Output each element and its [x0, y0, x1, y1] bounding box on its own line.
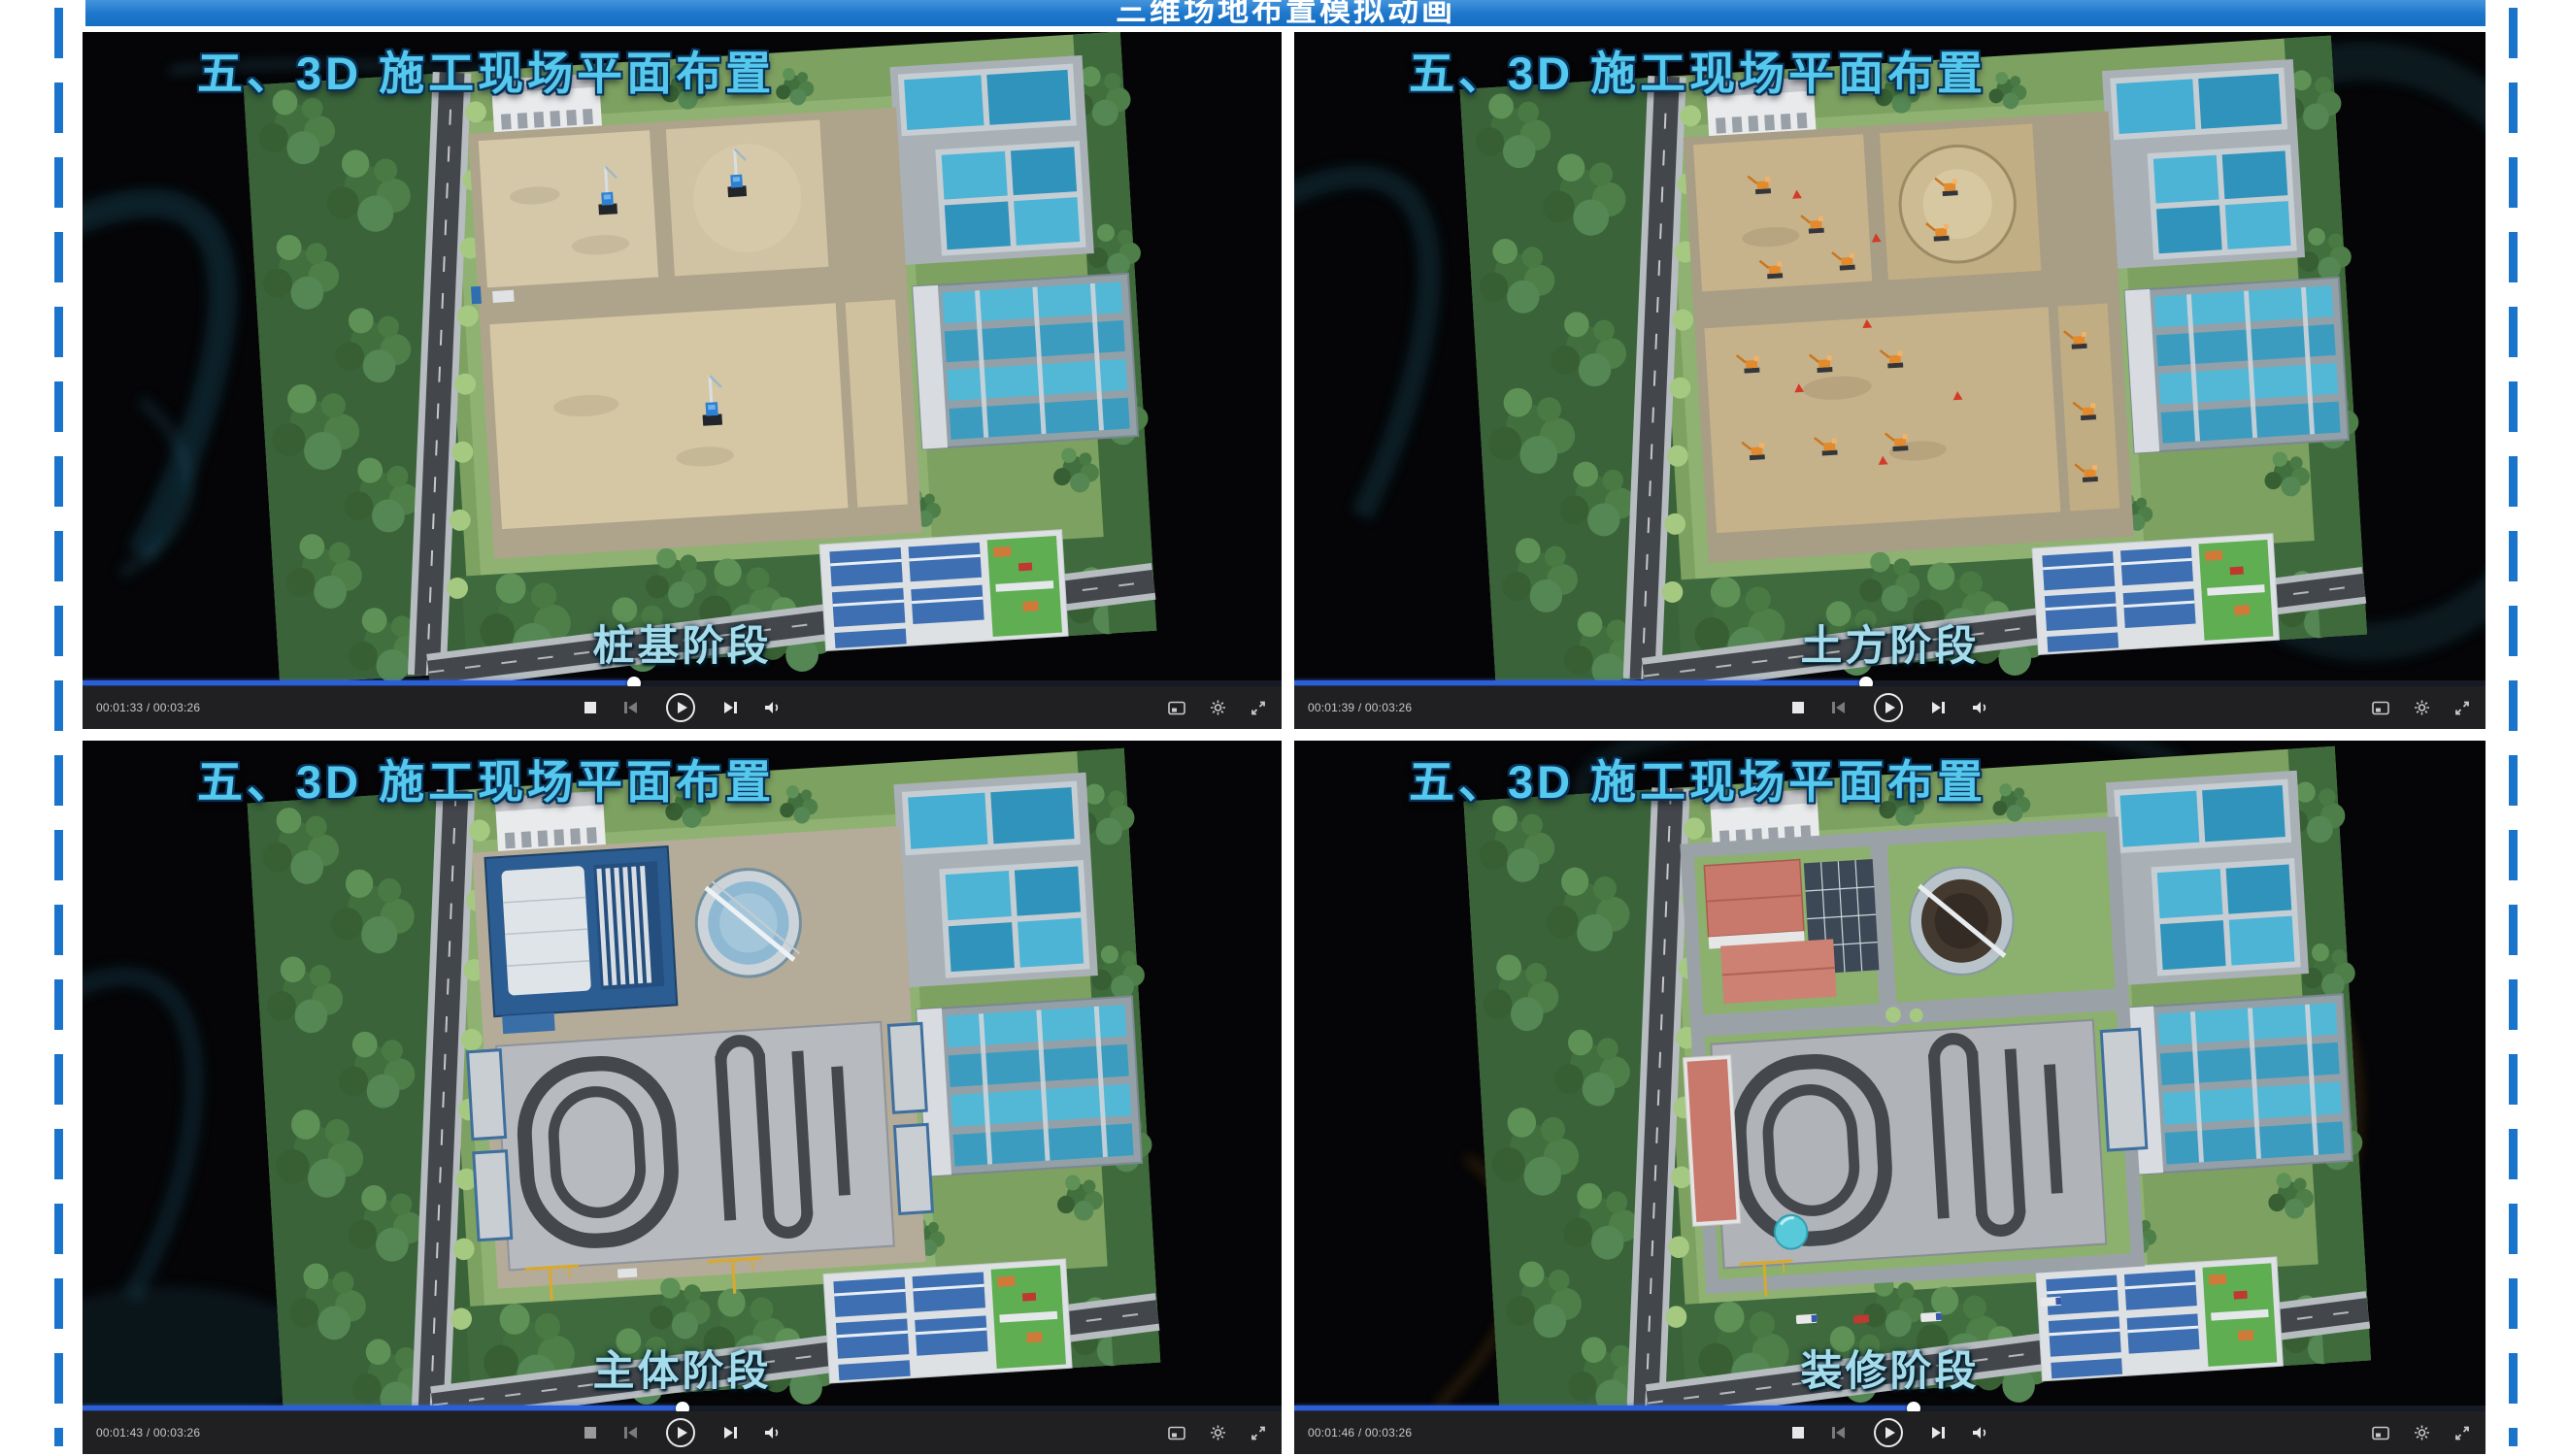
stop-icon[interactable]	[1791, 1426, 1805, 1439]
progress-fill	[1294, 680, 1866, 685]
progress-fill	[83, 1406, 683, 1410]
stop-icon[interactable]	[1791, 701, 1805, 714]
video-frame[interactable]: 五、3D 施工现场平面布置 装修阶段	[1294, 741, 2486, 1406]
volume-icon[interactable]	[764, 701, 782, 714]
video-overlay-title: 五、3D 施工现场平面布置	[1409, 745, 1986, 811]
settings-gear-icon[interactable]	[2414, 1425, 2430, 1441]
snapshot-icon[interactable]	[1168, 700, 1185, 715]
previous-frame-icon[interactable]	[1831, 1426, 1847, 1439]
stage-caption: 装修阶段	[1294, 1338, 2486, 1398]
time-display: 00:01:46 / 00:03:26	[1308, 1426, 1412, 1439]
previous-frame-icon[interactable]	[623, 1426, 639, 1439]
player-control-bar: 00:01:46 / 00:03:26	[1294, 1411, 2486, 1454]
progress-fill	[83, 680, 634, 685]
stage-caption: 桩基阶段	[83, 612, 1282, 673]
video-grid: 五、3D 施工现场平面布置 桩基阶段 00:01:33 / 00:03:26	[83, 32, 2486, 1454]
stop-icon[interactable]	[584, 701, 597, 714]
time-display: 00:01:33 / 00:03:26	[96, 701, 200, 714]
site-plan-decoration-stage	[1294, 741, 2486, 1406]
progress-fill	[1294, 1406, 1914, 1410]
snapshot-icon[interactable]	[2372, 1425, 2389, 1440]
time-display: 00:01:39 / 00:03:26	[1308, 701, 1412, 714]
video-overlay-title: 五、3D 施工现场平面布置	[197, 745, 775, 811]
settings-gear-icon[interactable]	[1210, 700, 1226, 716]
time-display: 00:01:43 / 00:03:26	[96, 1426, 200, 1439]
left-dashed-border	[54, 8, 63, 1446]
fullscreen-icon[interactable]	[2454, 700, 2470, 715]
player-control-bar: 00:01:39 / 00:03:26	[1294, 686, 2486, 729]
presentation-page: 三维场地布置模拟动画 五、3D 施工现场平面布置 桩基	[0, 0, 2569, 1456]
stop-icon[interactable]	[584, 1426, 597, 1439]
volume-icon[interactable]	[1972, 701, 1989, 714]
play-icon[interactable]	[665, 1417, 696, 1448]
site-plan-earthwork-stage	[1294, 32, 2486, 680]
video-frame[interactable]: 五、3D 施工现场平面布置 桩基阶段	[83, 32, 1282, 680]
next-frame-icon[interactable]	[1930, 701, 1946, 714]
video-player-earthwork-stage[interactable]: 五、3D 施工现场平面布置 土方阶段 00:01:39 / 00:03:26	[1294, 32, 2486, 729]
site-plan-main-structure-stage	[83, 741, 1282, 1406]
fullscreen-icon[interactable]	[1251, 1425, 1266, 1440]
video-frame[interactable]: 五、3D 施工现场平面布置 土方阶段	[1294, 32, 2486, 680]
snapshot-icon[interactable]	[1168, 1425, 1185, 1440]
volume-icon[interactable]	[764, 1426, 782, 1439]
page-title: 三维场地布置模拟动画	[85, 0, 2486, 26]
player-control-bar: 00:01:33 / 00:03:26	[83, 686, 1282, 729]
stage-caption: 土方阶段	[1294, 612, 2486, 673]
video-player-main-structure-stage[interactable]: 五、3D 施工现场平面布置 主体阶段 00:01:43 / 00:03:26	[83, 741, 1282, 1454]
video-overlay-title: 五、3D 施工现场平面布置	[1409, 36, 1986, 103]
stage-caption: 主体阶段	[83, 1338, 1282, 1398]
play-icon[interactable]	[1873, 692, 1904, 723]
video-frame[interactable]: 五、3D 施工现场平面布置 主体阶段	[83, 741, 1282, 1406]
site-plan-pile-stage	[83, 32, 1282, 680]
previous-frame-icon[interactable]	[623, 701, 639, 714]
settings-gear-icon[interactable]	[2414, 700, 2430, 716]
video-player-pile-stage[interactable]: 五、3D 施工现场平面布置 桩基阶段 00:01:33 / 00:03:26	[83, 32, 1282, 729]
fullscreen-icon[interactable]	[2454, 1425, 2470, 1440]
next-frame-icon[interactable]	[722, 1426, 738, 1439]
player-control-bar: 00:01:43 / 00:03:26	[83, 1411, 1282, 1454]
video-player-decoration-stage[interactable]: 五、3D 施工现场平面布置 装修阶段 00:01:46 / 00:03:26	[1294, 741, 2486, 1454]
next-frame-icon[interactable]	[722, 701, 738, 714]
volume-icon[interactable]	[1972, 1426, 1989, 1439]
snapshot-icon[interactable]	[2372, 700, 2389, 715]
play-icon[interactable]	[1873, 1417, 1904, 1448]
next-frame-icon[interactable]	[1930, 1426, 1946, 1439]
previous-frame-icon[interactable]	[1831, 701, 1847, 714]
video-overlay-title: 五、3D 施工现场平面布置	[197, 36, 775, 103]
play-icon[interactable]	[665, 692, 696, 723]
page-title-bar: 三维场地布置模拟动画	[85, 0, 2486, 26]
fullscreen-icon[interactable]	[1251, 700, 1266, 715]
right-dashed-border	[2509, 8, 2518, 1446]
settings-gear-icon[interactable]	[1210, 1425, 1226, 1441]
